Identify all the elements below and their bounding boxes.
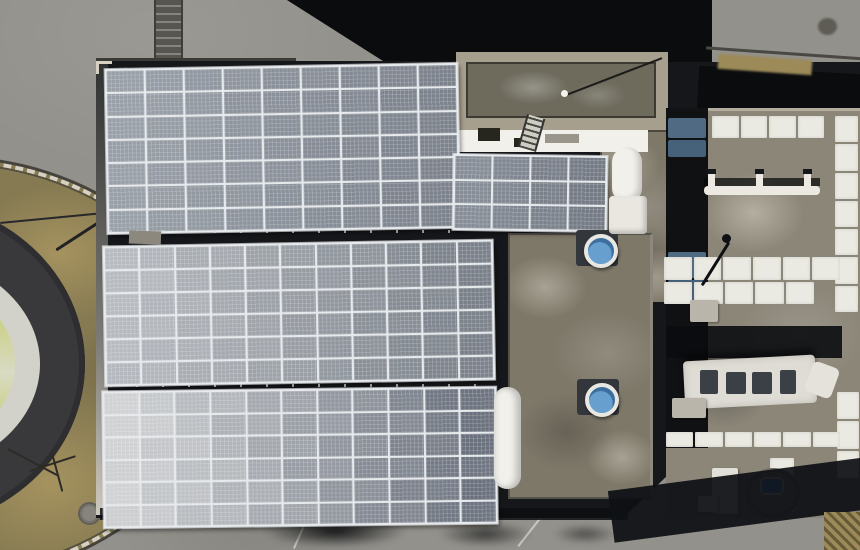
solar-panel <box>107 117 144 139</box>
solar-panel <box>283 413 317 434</box>
solar-panel <box>283 337 317 359</box>
solar-panel <box>381 135 418 157</box>
solar-panel <box>424 334 458 356</box>
solar-panel <box>282 268 316 290</box>
solar-panel <box>264 161 301 183</box>
solar-panel <box>341 90 378 112</box>
solar-panel <box>460 357 494 379</box>
solar-panel <box>318 413 352 434</box>
solar-panel <box>177 362 211 384</box>
solar-panel <box>284 503 318 524</box>
solar-panel <box>109 210 146 232</box>
solar-panel <box>319 480 353 501</box>
solar-panel <box>341 66 378 88</box>
solar-panel <box>461 456 495 477</box>
solar-panel <box>146 70 183 92</box>
solar-panel <box>265 207 302 229</box>
solar-panel <box>423 288 457 310</box>
solar-panel <box>341 113 378 135</box>
solar-panel <box>455 181 491 204</box>
machine-opening <box>726 372 746 394</box>
solar-panel <box>147 140 184 162</box>
solar-panel <box>302 114 339 136</box>
solar-panel <box>342 136 379 158</box>
solar-panel <box>212 338 246 360</box>
solar-panel <box>283 458 317 479</box>
solar-panel <box>263 114 300 136</box>
solar-panel <box>387 266 421 288</box>
pipe-railing-support <box>804 174 811 189</box>
solar-panel <box>212 459 246 480</box>
solar-panel <box>140 247 174 269</box>
solar-panel <box>455 205 491 228</box>
solar-panel <box>106 505 140 526</box>
solar-panel <box>211 246 245 268</box>
solar-panel <box>141 483 175 504</box>
machine-opening <box>700 370 718 394</box>
solar-panel <box>425 434 459 455</box>
solar-panel <box>247 436 281 457</box>
solar-panel <box>317 267 351 289</box>
solar-panel <box>382 205 419 227</box>
solar-panel <box>226 185 263 207</box>
solar-panel <box>248 337 282 359</box>
solar-panel <box>353 335 387 357</box>
blue-vent-lower <box>585 383 619 417</box>
solar-panel <box>264 138 301 160</box>
solar-panel <box>106 294 140 316</box>
solar-panel <box>105 460 139 481</box>
solar-panel <box>420 135 457 157</box>
solar-panel <box>352 243 386 265</box>
solar-panel <box>422 242 456 264</box>
white-vent-duct-upper <box>612 147 642 203</box>
solar-panel <box>303 160 340 182</box>
solar-panel <box>247 291 281 313</box>
solar-panel <box>107 363 141 385</box>
solar-panel <box>426 502 460 523</box>
solar-panel <box>380 112 417 134</box>
solar-panel <box>105 438 139 459</box>
solar-panel <box>424 357 458 379</box>
solar-panel <box>304 207 341 229</box>
solar-panel <box>426 479 460 500</box>
solar-panel <box>425 389 459 410</box>
solar-panel <box>211 269 245 291</box>
solar-panel <box>354 457 388 478</box>
solar-panel <box>569 182 605 205</box>
solar-panel <box>146 116 183 138</box>
solar-panel <box>263 68 300 90</box>
solar-panel <box>391 502 425 523</box>
solar-panel <box>531 182 567 205</box>
solar-panel <box>141 270 175 292</box>
solar-panel <box>569 158 605 181</box>
solar-panel <box>283 436 317 457</box>
solar-panel <box>387 243 421 265</box>
solar-panel <box>108 164 145 186</box>
solar-panel <box>246 245 280 267</box>
solar-panel <box>419 65 456 87</box>
solar-panel <box>140 438 174 459</box>
solar-panel <box>355 502 389 523</box>
solar-panel <box>283 481 317 502</box>
solar-panel <box>224 92 261 114</box>
solar-panel <box>187 209 224 231</box>
solar-panel <box>455 156 491 179</box>
solar-panel <box>425 412 459 433</box>
white-duct-box <box>609 196 647 234</box>
solar-panel <box>176 437 210 458</box>
machine-opening <box>780 370 796 394</box>
solar-panel <box>212 482 246 503</box>
solar-panel <box>318 313 352 335</box>
roof-junction-box <box>129 230 161 244</box>
solar-panel <box>353 312 387 334</box>
solar-array-2 <box>103 240 495 387</box>
solar-panel <box>354 435 388 456</box>
solar-panel <box>141 505 175 526</box>
solar-panel <box>459 334 493 356</box>
solar-panel <box>380 89 417 111</box>
solar-panel <box>176 415 210 436</box>
solar-panel <box>316 244 350 266</box>
solar-panel <box>263 91 300 113</box>
solar-array-1-main <box>105 63 461 234</box>
solar-panel <box>140 415 174 436</box>
solar-panel <box>107 94 144 116</box>
gravel-corner <box>824 512 860 550</box>
solar-panel <box>354 358 388 380</box>
solar-panel <box>142 339 176 361</box>
solar-panel <box>458 288 492 310</box>
panel-mount-fixings <box>110 384 480 387</box>
solar-panel <box>420 158 457 180</box>
solar-panel <box>531 157 567 180</box>
solar-panel <box>248 360 282 382</box>
solar-panel <box>177 505 211 526</box>
solar-panel <box>282 291 316 313</box>
solar-panel <box>105 248 139 270</box>
solar-panel <box>246 268 280 290</box>
solar-panel <box>343 183 380 205</box>
solar-panel <box>177 339 211 361</box>
solar-panel <box>458 242 492 264</box>
solar-panel <box>225 138 262 160</box>
solar-panel <box>142 362 176 384</box>
solar-panel <box>317 290 351 312</box>
solar-panel <box>568 207 604 230</box>
solar-panel <box>109 187 146 209</box>
solar-panel <box>319 435 353 456</box>
solar-panel <box>105 483 139 504</box>
solar-panel <box>354 412 388 433</box>
solar-panel <box>141 460 175 481</box>
solar-panel <box>390 457 424 478</box>
solar-panel <box>141 293 175 315</box>
solar-panel <box>461 434 495 455</box>
solar-panel <box>265 184 302 206</box>
solar-panel <box>186 162 223 184</box>
solar-panel <box>419 112 456 134</box>
solar-panel <box>146 93 183 115</box>
equipment-box <box>672 398 706 418</box>
solar-panel <box>211 292 245 314</box>
solar-panel <box>389 335 423 357</box>
solar-panel <box>224 115 261 137</box>
solar-panel <box>185 116 222 138</box>
solar-panel <box>459 311 493 333</box>
solar-panel <box>176 270 210 292</box>
solar-panel <box>419 88 456 110</box>
solar-panel <box>493 156 529 179</box>
solar-panel <box>186 139 223 161</box>
solar-panel <box>318 359 352 381</box>
solar-panel <box>354 390 388 411</box>
solar-panel <box>302 67 339 89</box>
solar-panel <box>175 392 209 413</box>
solar-array-3 <box>102 387 498 529</box>
white-vent-duct-lower <box>494 387 521 489</box>
solar-panel <box>318 336 352 358</box>
solar-panel <box>461 411 495 432</box>
solar-panel <box>462 501 496 522</box>
solar-panel <box>248 504 282 525</box>
solar-panel <box>212 315 246 337</box>
solar-panel <box>319 503 353 524</box>
solar-panel <box>247 391 281 412</box>
solar-panel <box>343 206 380 228</box>
solar-panel <box>226 208 263 230</box>
solar-panel <box>283 360 317 382</box>
solar-panel <box>390 434 424 455</box>
solar-panel <box>388 289 422 311</box>
solar-panel <box>106 317 140 339</box>
solar-panel <box>213 361 247 383</box>
solar-panel <box>282 391 316 412</box>
solar-panel <box>381 159 418 181</box>
solar-panel <box>318 390 352 411</box>
solar-array-1-extension <box>452 154 607 232</box>
solar-panel <box>355 480 389 501</box>
solar-panel <box>390 412 424 433</box>
solar-panel <box>247 314 281 336</box>
solar-panel <box>106 340 140 362</box>
solar-panel <box>187 185 224 207</box>
solar-panel <box>319 458 353 479</box>
solar-panel <box>461 389 495 410</box>
pipe-railing-support <box>756 174 763 189</box>
solar-panel <box>353 289 387 311</box>
solar-panel <box>282 314 316 336</box>
solar-panel <box>147 163 184 185</box>
solar-panel <box>342 159 379 181</box>
solar-panel <box>212 437 246 458</box>
solar-panel <box>176 293 210 315</box>
solar-panel <box>104 393 138 414</box>
solar-panel <box>462 479 496 500</box>
solar-panel <box>104 415 138 436</box>
solar-panel <box>211 392 245 413</box>
solar-panel <box>107 70 144 92</box>
solar-panel <box>105 271 139 293</box>
solar-panel <box>426 457 460 478</box>
solar-panel <box>304 183 341 205</box>
solar-panel <box>389 389 423 410</box>
solar-panel <box>423 311 457 333</box>
solar-panel <box>352 266 386 288</box>
solar-panel <box>248 459 282 480</box>
solar-panel <box>247 414 281 435</box>
pipe-railing-support <box>708 174 715 189</box>
solar-panel <box>530 206 566 229</box>
solar-panel <box>212 504 246 525</box>
solar-panel <box>224 68 261 90</box>
machine-opening <box>752 372 772 394</box>
solar-panel <box>458 265 492 287</box>
solar-panel <box>148 186 185 208</box>
solar-panel <box>493 181 529 204</box>
equipment-box <box>690 300 718 322</box>
solar-panel <box>388 312 422 334</box>
solar-panel <box>176 460 210 481</box>
aerial-photo-scene <box>0 0 860 550</box>
solar-panel <box>390 479 424 500</box>
solar-panel <box>177 482 211 503</box>
solar-panel <box>185 69 222 91</box>
solar-panel <box>185 92 222 114</box>
solar-panel <box>302 90 339 112</box>
solar-panel <box>493 206 529 229</box>
solar-panel <box>225 161 262 183</box>
solar-panel <box>389 358 423 380</box>
solar-panel <box>382 182 419 204</box>
solar-panel <box>248 481 282 502</box>
solar-panel <box>141 316 175 338</box>
solar-panel <box>177 316 211 338</box>
solar-panel <box>281 245 315 267</box>
solar-panel <box>211 414 245 435</box>
blue-vent-upper <box>584 234 618 268</box>
solar-panel <box>423 265 457 287</box>
solar-panel <box>380 66 417 88</box>
solar-panel <box>148 209 185 231</box>
solar-panel <box>108 140 145 162</box>
solar-panel <box>140 393 174 414</box>
solar-panel <box>175 247 209 269</box>
solar-panel <box>303 137 340 159</box>
